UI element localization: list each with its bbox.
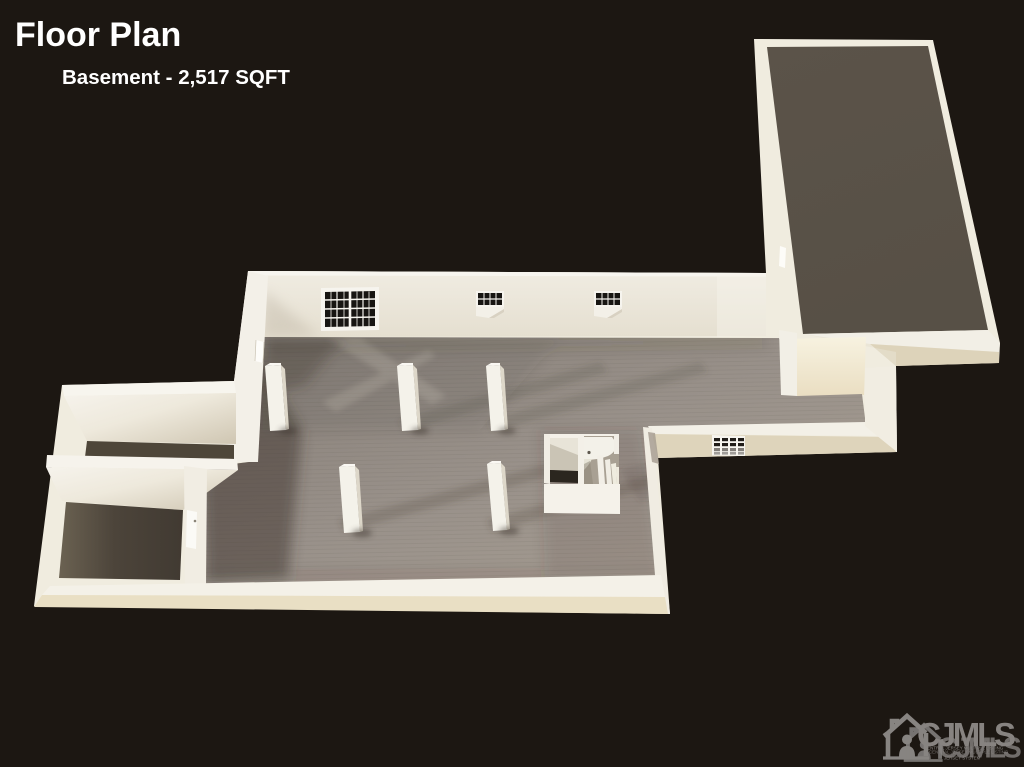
svg-text:JERSEY SYSTEM: JERSEY SYSTEM (944, 756, 981, 761)
